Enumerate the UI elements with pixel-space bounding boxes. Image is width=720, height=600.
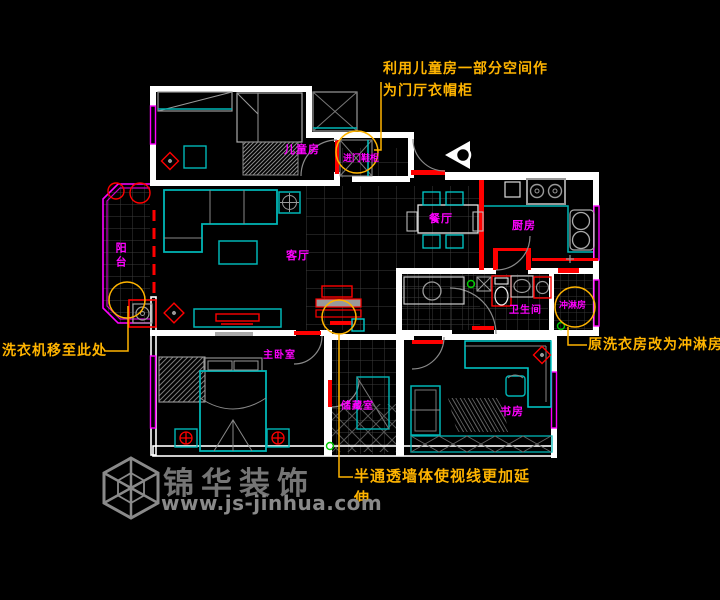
room-label-study: 书房 (500, 406, 524, 418)
tv-icon (216, 314, 259, 321)
room-label-master: 主卧室 (263, 350, 296, 361)
room-label-balcony: 阳台 (114, 242, 126, 270)
decor-diamond-icon (162, 153, 179, 170)
shower-head-icon (566, 255, 574, 263)
kitchen-furniture (484, 179, 594, 252)
annotation-left-text: 洗衣机移至此处 (2, 343, 107, 359)
chair-icon (184, 146, 206, 168)
coffee-table-icon (219, 241, 257, 264)
room-label-children: 儿童房 (284, 144, 320, 156)
label-entry-cabinet: 进门鞋柜 (343, 155, 379, 165)
annotation-top-line2: 为门厅衣帽柜 (383, 80, 548, 102)
annotation-top: 利用儿童房一部分空间作 为门厅衣帽柜 (383, 58, 548, 102)
study-furniture (411, 341, 552, 452)
room-label-storage: 储藏室 (341, 401, 374, 412)
chair-icon (506, 376, 525, 396)
jinhua-cube-logo-icon (100, 456, 162, 520)
cad-floor-plan-screenshot: 儿童房 阳台 客厅 餐厅 厨房 卫生间 冲淋房 主卧室 储藏室 书房 进门鞋柜 … (0, 0, 720, 600)
stove-icon (527, 179, 565, 204)
watermark-url: www.js-jinhua.com (161, 491, 382, 515)
watermark: 锦华装饰 www.js-jinhua.com (98, 454, 358, 529)
room-label-kitchen: 厨房 (512, 220, 536, 232)
room-label-living: 客厅 (286, 250, 310, 262)
decor-diamond-icon (534, 347, 551, 364)
annotation-bottom-line1: 半通透墙体使视线更加延 (354, 465, 530, 487)
bed-icon (237, 93, 302, 142)
wall-tv-icon (215, 332, 253, 336)
lamp-icon (180, 432, 284, 444)
wardrobe-icon (159, 357, 205, 402)
room-label-dining: 餐厅 (429, 213, 453, 225)
annotation-right-text: 原洗衣房改为冲淋房 (588, 337, 720, 353)
annotation-top-line1: 利用儿童房一部分空间作 (383, 58, 548, 80)
sofa-icon (164, 190, 277, 252)
entry-arrow-icon (445, 141, 470, 169)
decor-diamond-icon (164, 303, 184, 323)
annotation-right: 原洗衣房改为冲淋房 (588, 334, 720, 356)
room-label-bathroom: 卫生间 (509, 305, 542, 316)
annotation-left: 洗衣机移至此处 (2, 340, 107, 362)
room-label-shower: 冲淋房 (559, 302, 586, 312)
